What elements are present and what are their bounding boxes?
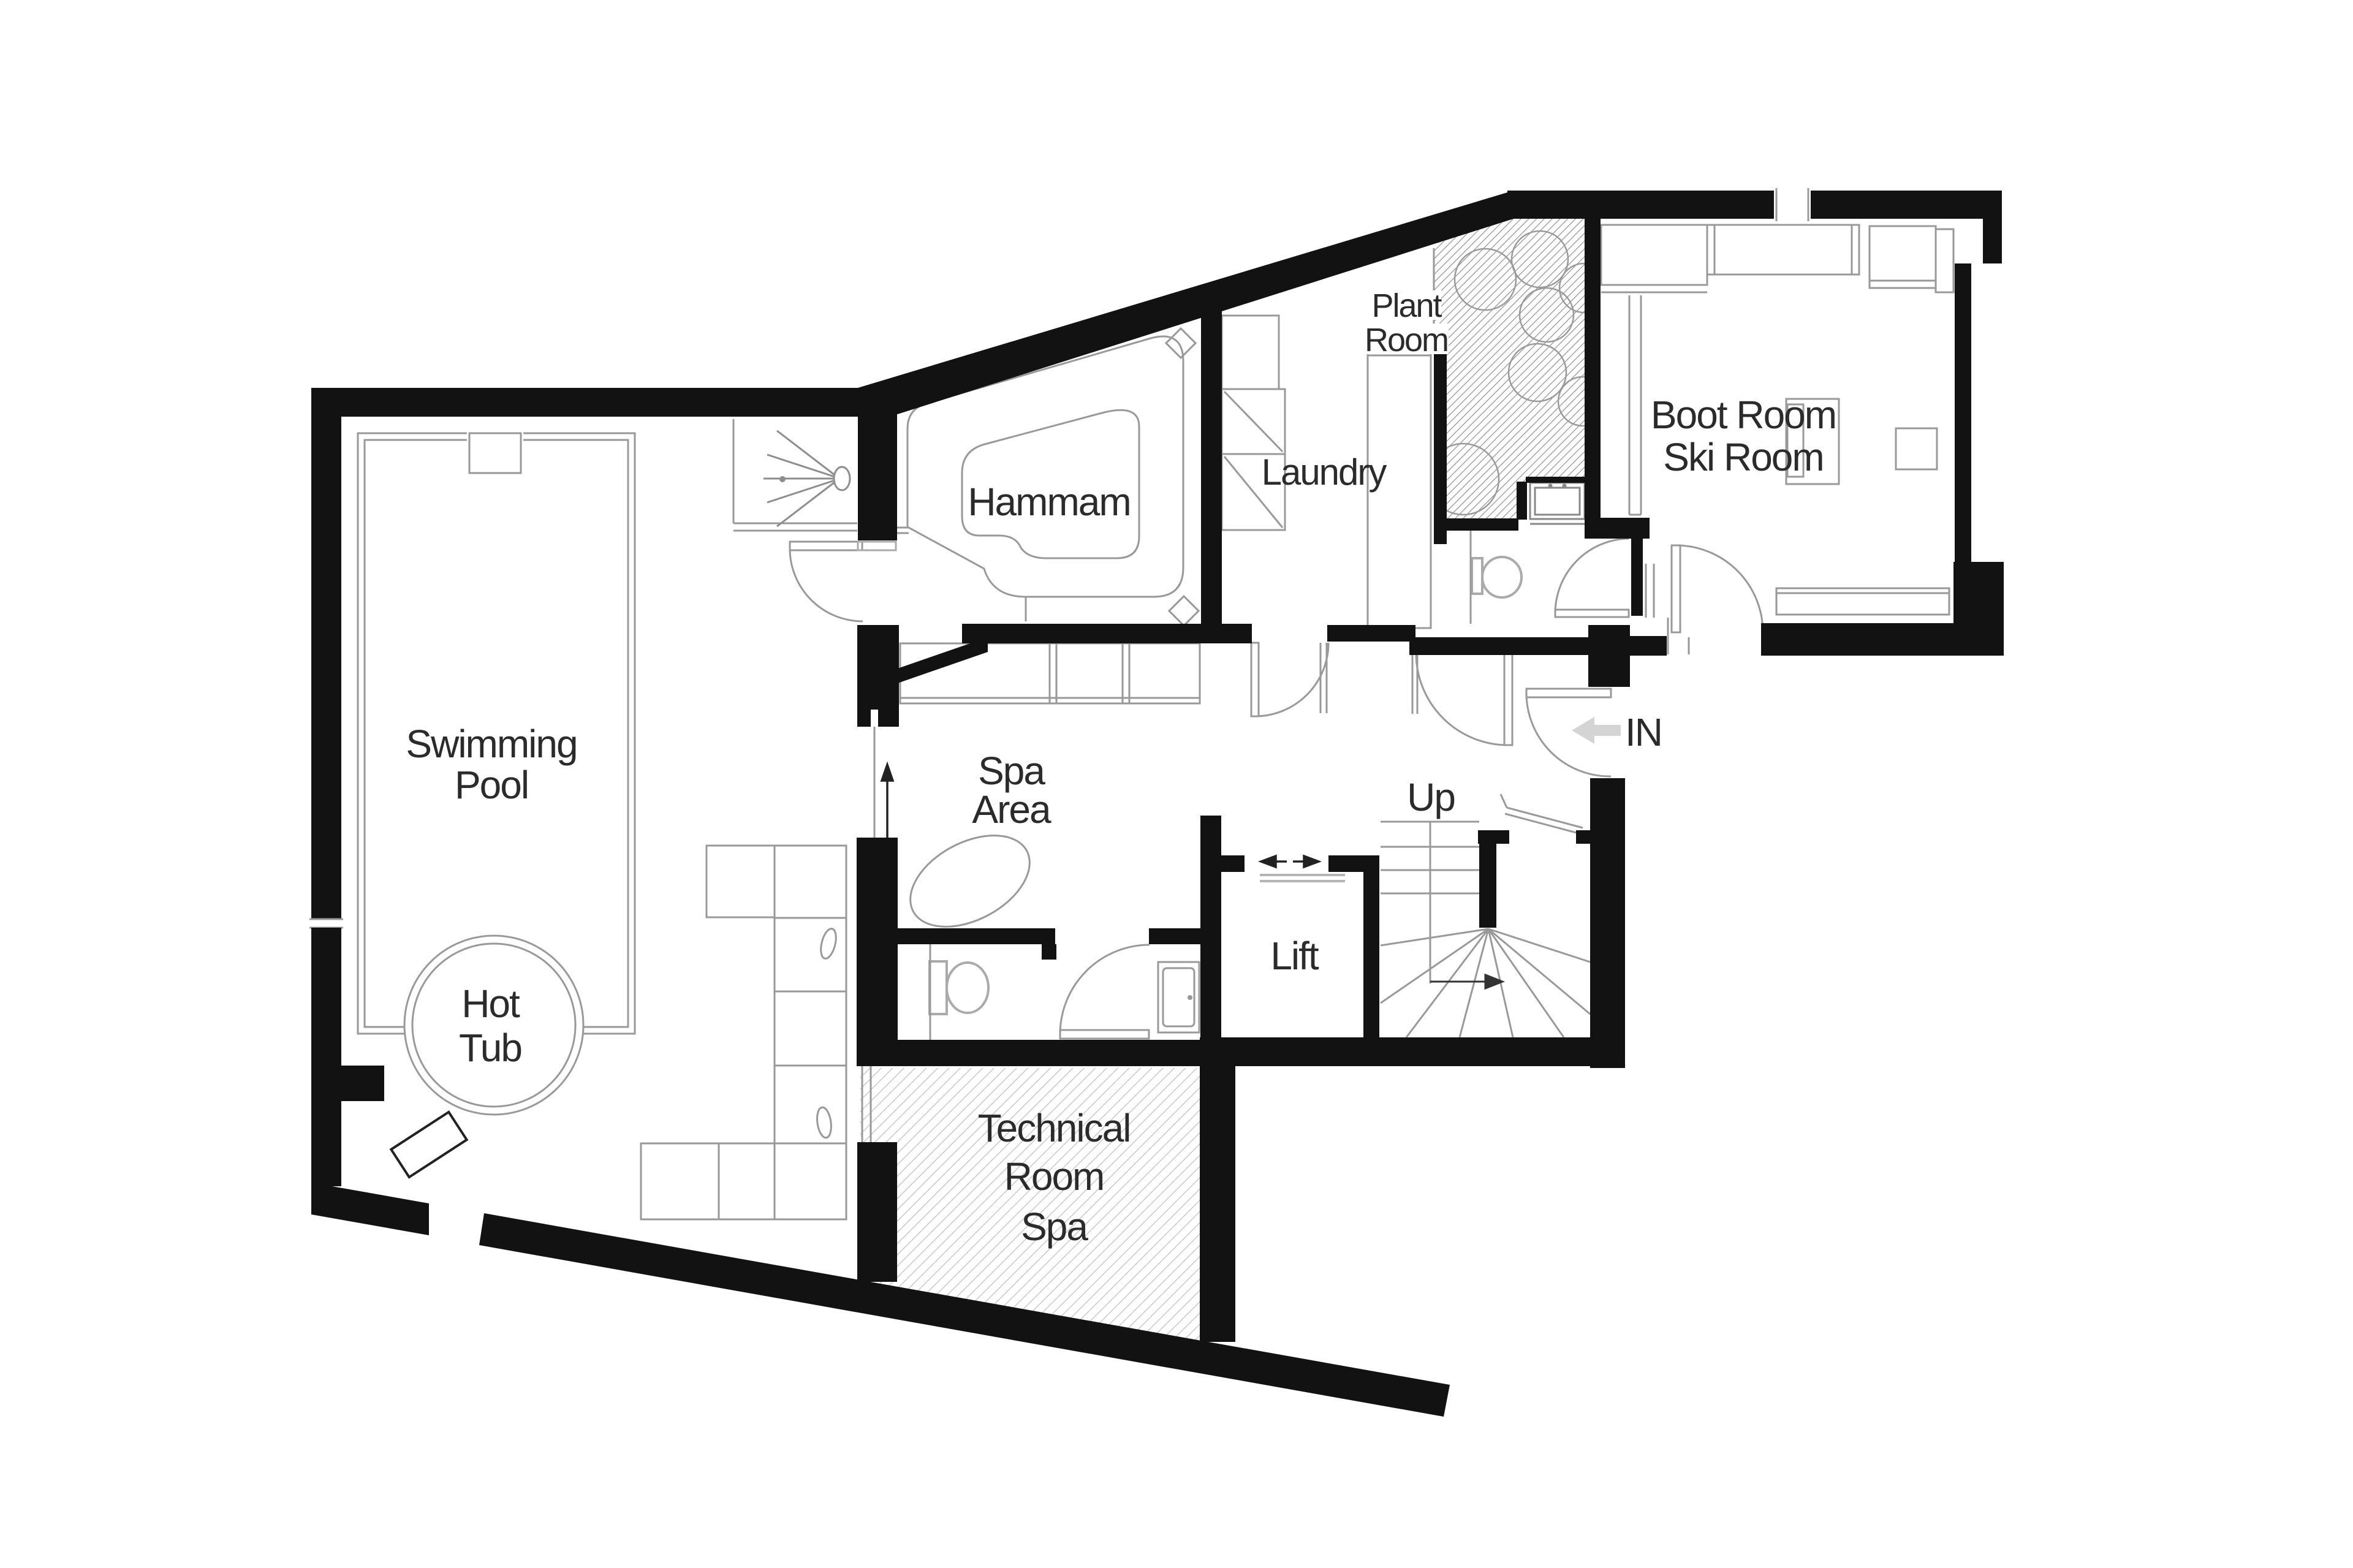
svg-text:Boot Room: Boot Room [1651, 393, 1836, 437]
svg-text:Pool: Pool [455, 763, 528, 807]
svg-text:Tub: Tub [459, 1026, 521, 1070]
svg-text:Spa: Spa [978, 749, 1045, 793]
svg-text:Swimming: Swimming [406, 722, 577, 766]
svg-text:IN: IN [1625, 710, 1662, 754]
svg-text:Room: Room [1004, 1154, 1104, 1199]
svg-text:Plant: Plant [1371, 287, 1442, 324]
svg-text:Hammam: Hammam [968, 480, 1130, 524]
svg-text:Laundry: Laundry [1262, 452, 1387, 493]
svg-text:Spa: Spa [1021, 1205, 1088, 1249]
svg-text:Lift: Lift [1270, 934, 1319, 978]
svg-text:Up: Up [1407, 775, 1455, 819]
svg-text:Hot: Hot [461, 982, 520, 1026]
svg-text:Area: Area [972, 787, 1051, 831]
svg-text:Ski Room: Ski Room [1663, 435, 1823, 479]
svg-text:Technical: Technical [978, 1106, 1131, 1150]
svg-text:Room: Room [1365, 322, 1448, 358]
